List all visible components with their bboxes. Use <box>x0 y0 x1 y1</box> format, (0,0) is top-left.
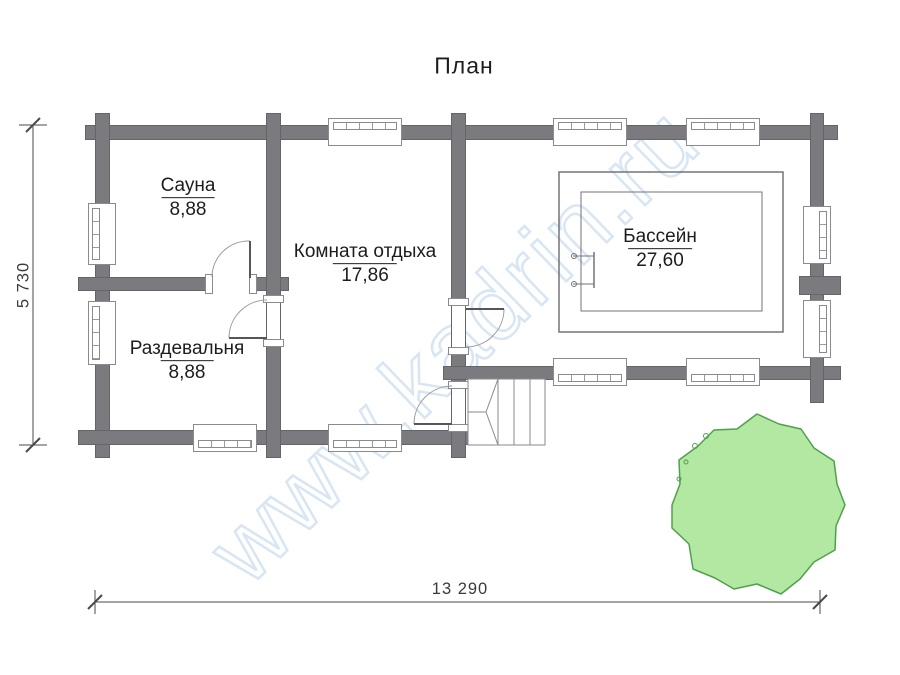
dimension-width: 13 290 <box>432 580 488 599</box>
room-name: Бассейн <box>623 226 697 248</box>
tree-icon <box>672 414 845 594</box>
stairs-entrance <box>468 379 545 445</box>
room-area: 8,88 <box>161 360 214 384</box>
floor-plan: www.kadrin.ru <box>0 0 900 675</box>
room-name: Сауна <box>161 175 216 197</box>
room-name: Комната отдыха <box>294 241 437 263</box>
room-area: 27,60 <box>628 248 692 272</box>
room-area: 8,88 <box>162 197 215 221</box>
dimension-height: 5 730 <box>15 262 34 308</box>
pool-ladder-icon <box>572 252 595 288</box>
room-label-pool: Бассейн 27,60 <box>623 226 697 272</box>
room-name: Раздевальня <box>130 338 245 360</box>
room-label-sauna: Сауна 8,88 <box>161 175 216 221</box>
page-title: План <box>434 53 493 80</box>
room-label-rest-room: Комната отдыха 17,86 <box>294 241 437 287</box>
room-label-dressing-room: Раздевальня 8,88 <box>130 338 245 384</box>
room-area: 17,86 <box>333 263 397 287</box>
